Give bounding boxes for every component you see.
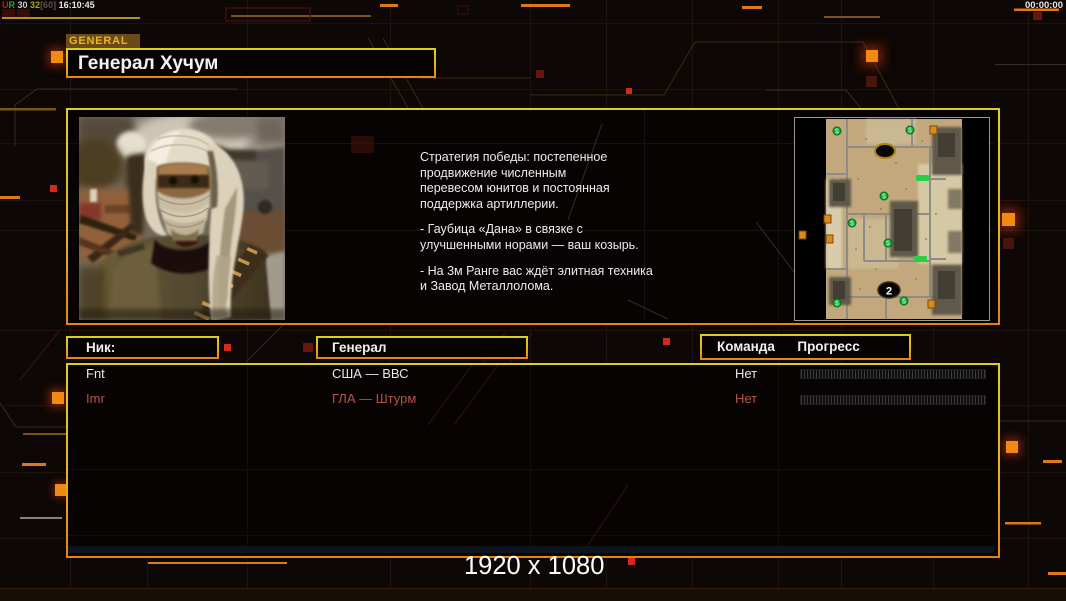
svg-text:$: $ xyxy=(835,301,839,308)
svg-text:$: $ xyxy=(850,221,854,228)
svg-text:$: $ xyxy=(902,299,906,306)
svg-text:$: $ xyxy=(882,194,886,201)
svg-text:$: $ xyxy=(835,129,839,136)
svg-text:$: $ xyxy=(886,241,890,248)
svg-text:$: $ xyxy=(908,128,912,135)
svg-text:2: 2 xyxy=(886,286,892,298)
